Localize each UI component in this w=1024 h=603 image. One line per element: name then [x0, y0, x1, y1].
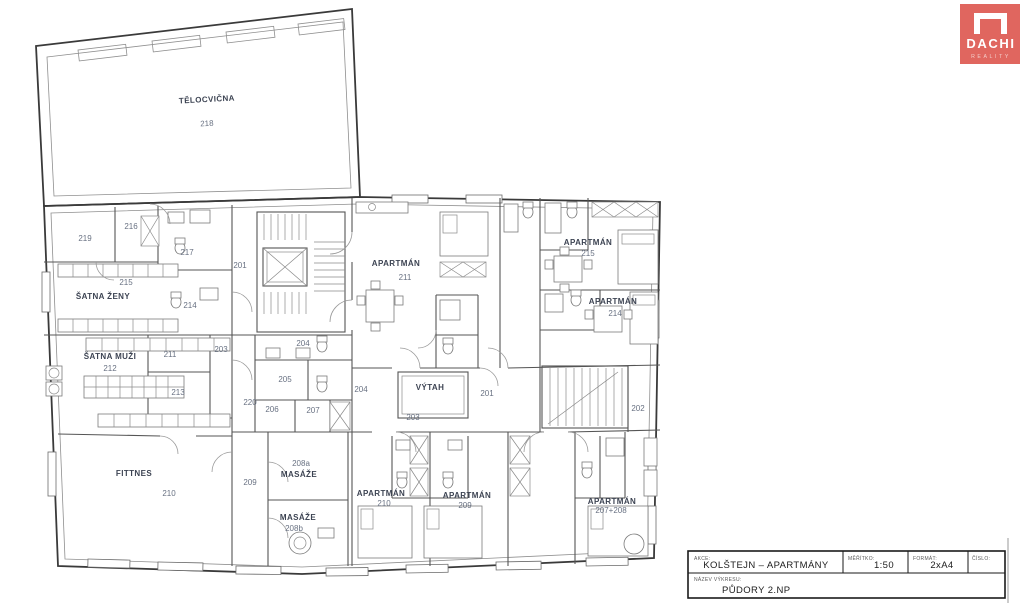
- drawing-title-label: NÁZEV VÝKRESU:: [694, 576, 742, 583]
- right-staircase: [542, 366, 628, 428]
- room-label-masaze-a: MASÁŽE: [281, 470, 317, 479]
- room-number-205: 205: [278, 375, 292, 384]
- drawing-page: TĚLOCVIČNA 218: [0, 0, 1024, 603]
- room-number-211-left: 211: [164, 350, 177, 359]
- room-number-207: 207: [306, 406, 320, 415]
- room-number-209-left: 209: [243, 478, 257, 487]
- room-number-203-left: 203: [214, 345, 228, 354]
- room-number-204-left: 204: [296, 339, 310, 348]
- room-number-206: 206: [265, 405, 279, 414]
- room-number-204-corridor: 204: [354, 385, 368, 394]
- scale-value: 1:50: [874, 560, 894, 571]
- room-number-201-corridor: 201: [480, 389, 494, 398]
- apartman-209-number: 209: [458, 501, 472, 510]
- room-number-203-corridor: 203: [406, 413, 420, 422]
- apartman-215-number: 215: [581, 249, 595, 258]
- logo-brand-text: DACHI: [966, 36, 1015, 51]
- project-name: KOLŠTEJN – APARTMÁNY: [703, 560, 829, 571]
- apartman-211-label: APARTMÁN: [372, 259, 420, 268]
- apartman-209-label: APARTMÁN: [443, 491, 491, 500]
- title-block: AKCE: KOLŠTEJN – APARTMÁNY MĚŘÍTKO: 1:50…: [688, 538, 1008, 603]
- room-label-telocvicna: TĚLOCVIČNA: [179, 94, 235, 106]
- format-value: 2xA4: [930, 560, 953, 571]
- room-number-214: 214: [183, 301, 197, 310]
- drawing-title: PŮDORY 2.NP: [722, 584, 790, 596]
- room-number-202: 202: [631, 404, 645, 413]
- apartman-207-208-label: APARTMÁN: [588, 497, 636, 506]
- apartman-210-label: APARTMÁN: [357, 489, 405, 498]
- room-number-216: 216: [124, 222, 138, 231]
- room-number-215: 215: [119, 278, 133, 287]
- room-number-220: 220: [243, 398, 257, 407]
- room-number-213: 213: [171, 388, 185, 397]
- room-label-satna-muzi: ŠATNA MUŽI: [84, 352, 136, 361]
- apartman-210-number: 210: [377, 499, 391, 508]
- room-number-219: 219: [78, 234, 92, 243]
- gym-block: TĚLOCVIČNA 218: [36, 9, 360, 206]
- apartman-207-208-number: 207+208: [595, 506, 627, 515]
- scale-label: MĚŘÍTKO:: [848, 554, 875, 562]
- apartman-214-label: APARTMÁN: [589, 297, 637, 306]
- logo-sub-text: REALITY: [971, 54, 1011, 60]
- room-number-208b: 208b: [285, 524, 303, 533]
- apartman-211-number: 211: [399, 273, 412, 282]
- apartman-214-number: 214: [608, 309, 622, 318]
- room-number-208a: 208a: [292, 459, 310, 468]
- room-number-217: 217: [180, 248, 194, 257]
- room-number-218: 218: [200, 119, 214, 129]
- room-label-satna-zeny: ŠATNA ŽENY: [76, 292, 130, 301]
- room-label-vytah: VÝTAH: [416, 383, 445, 392]
- dachi-logo: DACHI REALITY: [960, 4, 1020, 64]
- room-number-210-left: 210: [162, 489, 176, 498]
- room-number-212: 212: [103, 364, 117, 373]
- room-label-fittnes: FITTNES: [116, 469, 152, 478]
- apartman-215-label: APARTMÁN: [564, 238, 612, 247]
- room-label-masaze-b: MASÁŽE: [280, 513, 316, 522]
- room-number-201-left: 201: [233, 261, 247, 270]
- elevator-shaft: [398, 372, 468, 418]
- floor-plan-canvas: TĚLOCVIČNA 218: [0, 0, 1024, 603]
- number-label: ČÍSLO:: [972, 555, 990, 562]
